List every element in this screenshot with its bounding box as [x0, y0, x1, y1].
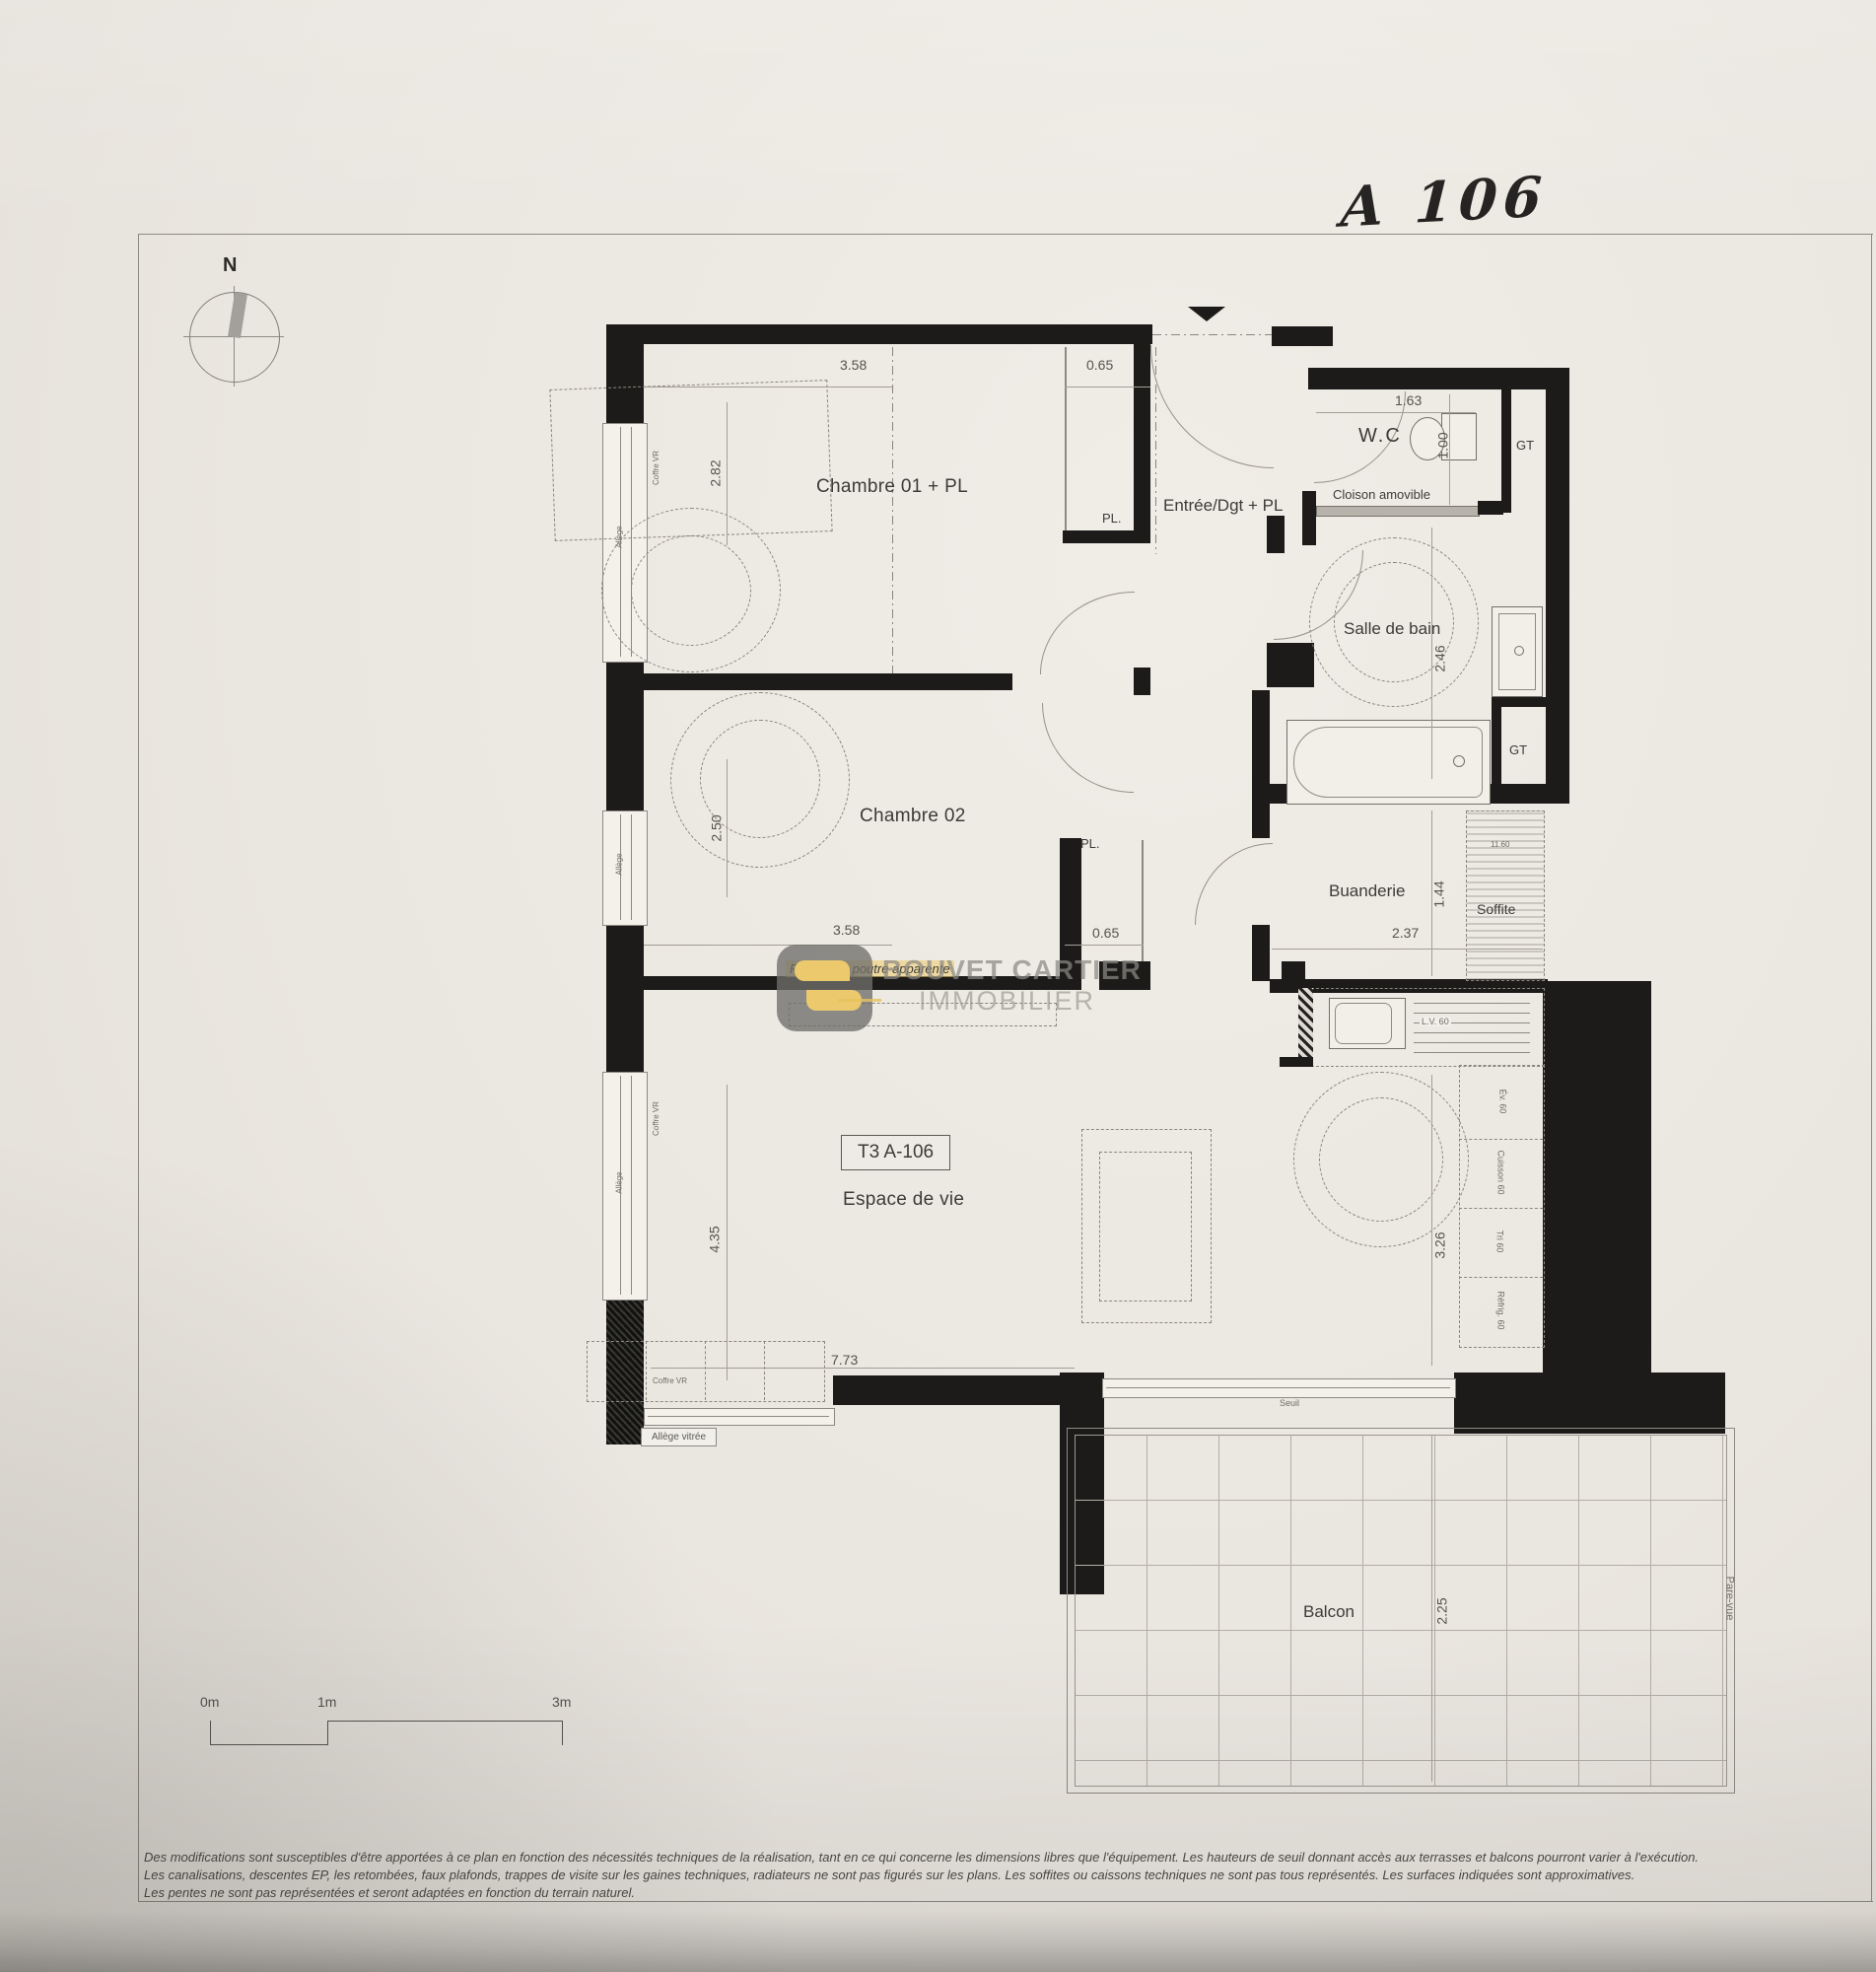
dimline-ch02-h: [727, 759, 728, 897]
dim-ch02-w: 3.58: [833, 922, 860, 938]
frame-top: [138, 234, 1873, 235]
label-allege-living: Allège: [615, 1171, 624, 1193]
dim-ch01-pl: 0.65: [1086, 357, 1113, 373]
dim-buanderie-w: 2.37: [1392, 925, 1419, 941]
label-allege-ch01: Allège: [615, 526, 624, 547]
watermark-sub: IMMOBILIER: [919, 986, 1095, 1017]
balcony-tiles: [1075, 1435, 1727, 1787]
watermark-name: BOUVET CARTIER: [882, 954, 1142, 986]
wall-corridor-buanderie-2: [1252, 925, 1270, 981]
dimline-sejour-w: [651, 1368, 1075, 1369]
watermark-logo-icon: [777, 945, 872, 1031]
label-cloison-amovible: Cloison amovible: [1333, 487, 1430, 502]
kitchen-item-tri: Tri 60: [1494, 1231, 1504, 1253]
pl01-partition: [1065, 347, 1067, 530]
dimline-ch01-h: [727, 402, 728, 545]
dim-sejour-w: 7.73: [831, 1352, 858, 1368]
scale-tick-3: [562, 1721, 563, 1745]
kitchen-divider-1: [1459, 1139, 1543, 1140]
axis-entry-threshold: [1152, 334, 1272, 335]
label-pl-ch02: PL.: [1080, 836, 1100, 851]
living-circle-inner: [1319, 1097, 1443, 1222]
label-coffre-vr-ch01: Coffre VR: [652, 451, 660, 485]
balcony-door-line: [1106, 1387, 1450, 1388]
dimline-buanderie-w: [1272, 949, 1543, 950]
disclaimer-line-1: Des modifications sont susceptibles d'êt…: [144, 1850, 1699, 1865]
kitchen-item-cuisson: Cuisson 60: [1496, 1150, 1506, 1194]
ch02-closet-partition: [1142, 840, 1144, 979]
handwritten-unit-label: A 106: [1339, 164, 1549, 240]
wall-cloison-right: [1478, 501, 1503, 515]
door-arc-buanderie: [1195, 843, 1273, 925]
dim-balcon-d: 2.25: [1434, 1597, 1450, 1624]
room-label-chambre02: Chambre 02: [860, 806, 966, 827]
window-living-glazing2: [631, 1076, 632, 1295]
door-arc-corridor-up: [1040, 592, 1135, 674]
wall-left-3: [606, 924, 644, 1072]
frame-right: [1871, 234, 1872, 1902]
wall-gt-divider: [1501, 389, 1511, 513]
kitchen-divider-2: [1459, 1208, 1543, 1209]
label-pl-ch01: PL.: [1102, 511, 1122, 526]
wall-right-mass: [1543, 981, 1651, 1375]
bath-vanity-faucet: [1514, 646, 1524, 656]
scale-label-1m: 1m: [317, 1694, 336, 1710]
dim-buanderie-h: 1.44: [1431, 880, 1447, 907]
label-allege-vitree: Allège vitrée: [641, 1428, 717, 1446]
dimline-balcon-d: [1431, 1435, 1432, 1782]
wall-living-bottom: [833, 1375, 1060, 1405]
dimline-ch02-pl: [1065, 945, 1144, 946]
scale-label-0m: 0m: [200, 1694, 219, 1710]
room-label-balcon: Balcon: [1303, 1602, 1355, 1622]
wall-wc-top: [1308, 368, 1569, 389]
kitchen-divider-3: [1459, 1277, 1543, 1278]
wall-entry-stub: [1272, 326, 1333, 346]
room-label-espace-de-vie: Espace de vie: [843, 1189, 964, 1211]
window-ch02-glazing2: [631, 814, 632, 920]
wall-top-ch01: [608, 324, 1152, 344]
wall-balcony-top-right: [1454, 1373, 1725, 1434]
label-seuil: Seuil: [1280, 1398, 1299, 1408]
wall-pl01-bottom: [1063, 530, 1150, 543]
room-label-chambre01: Chambre 01 + PL: [816, 476, 968, 498]
wall-cloison-left: [1302, 491, 1316, 545]
bay-window-line: [648, 1416, 829, 1417]
sofa: [587, 1341, 825, 1402]
frame-left: [138, 234, 139, 1902]
wall-bath-door-stub-a: [1267, 516, 1285, 553]
soffite-area: [1466, 810, 1545, 981]
bay-window-bottom: [644, 1408, 835, 1426]
dim-ch01-w: 3.58: [840, 357, 867, 373]
sofa-div-3: [764, 1341, 765, 1400]
kitchen-item-refrig: Réfrig. 60: [1496, 1291, 1506, 1329]
cloison-amovible-bar: [1316, 506, 1480, 517]
ch01-circle-inner: [631, 535, 751, 646]
room-label-soffite: Soffite: [1477, 901, 1515, 917]
floor-plan-photo: A 106 N: [0, 0, 1876, 1972]
dimline-sejour-h: [727, 1085, 728, 1380]
scale-tick-0: [210, 1721, 211, 1745]
scale-top-seg: [327, 1721, 562, 1722]
dim-sejour-h: 4.35: [707, 1226, 723, 1252]
axis-ch01-right: [892, 347, 893, 673]
label-pare-vue: Pare-vue: [1723, 1577, 1735, 1621]
dim-ch02-h: 2.50: [709, 814, 725, 841]
wall-left-2: [606, 661, 644, 810]
dimline-ch01-w: [644, 387, 892, 387]
label-gt-wc: GT: [1516, 438, 1534, 453]
scale-bottom-seg: [210, 1744, 327, 1745]
dimline-ch01-pl: [1065, 387, 1150, 387]
kitchen-duct-cap: [1280, 1057, 1313, 1067]
wall-ch01-ch02-cap: [1134, 668, 1150, 695]
sofa-div-2: [705, 1341, 706, 1400]
photo-bottom-shadow: [0, 1911, 1876, 1972]
dim-ch01-h: 2.82: [708, 459, 724, 486]
label-coffre-vr-living: Coffre VR: [652, 1101, 660, 1136]
room-label-buanderie: Buanderie: [1329, 881, 1406, 901]
dim-wc-w: 1.63: [1395, 392, 1422, 408]
dining-table-inner: [1099, 1152, 1192, 1302]
kitchen-item-evier: Év. 60: [1497, 1090, 1507, 1114]
dimline-cuisine-h: [1431, 1075, 1432, 1366]
watermark-dash: [838, 999, 881, 1002]
dim-cuisine-h: 3.26: [1432, 1232, 1448, 1258]
scale-tick-1: [327, 1721, 328, 1745]
wall-ch01-ch02: [644, 673, 1012, 690]
room-label-entree: Entrée/Dgt + PL: [1163, 496, 1283, 516]
disclaimer-line-2: Les canalisations, descentes EP, les ret…: [144, 1867, 1634, 1882]
wall-pl01-right: [1134, 344, 1150, 541]
door-arc-ch02: [1042, 703, 1134, 793]
room-label-salle-de-bain: Salle de bain: [1344, 619, 1440, 639]
window-living: [602, 1072, 648, 1301]
room-label-wc: W.C: [1358, 425, 1402, 448]
label-soffite-dim: 11.60: [1491, 840, 1509, 849]
window-ch02: [602, 810, 648, 926]
label-gt-bain: GT: [1509, 742, 1527, 757]
wall-buanderie-pillar: [1282, 961, 1305, 979]
dim-ch02-pl: 0.65: [1092, 925, 1119, 941]
kitchen-duct: [1298, 988, 1313, 1057]
label-coffre-vr-bottom: Coffre VR: [653, 1376, 687, 1385]
frame-bottom: [138, 1901, 1873, 1902]
disclaimer-line-3: Les pentes ne sont pas représentées et s…: [144, 1885, 635, 1900]
label-allege-ch02: Allège: [615, 853, 624, 875]
sofa-div-1: [646, 1341, 647, 1400]
dim-wc-d: 1.00: [1435, 432, 1451, 458]
unit-box: T3 A-106: [841, 1135, 950, 1170]
wall-bath-door-stub-b: [1267, 643, 1314, 687]
entry-arrow-icon: [1188, 307, 1225, 321]
dimline-wc-w: [1316, 412, 1476, 413]
compass-n-label: N: [223, 254, 237, 277]
wall-corridor-buanderie-1: [1252, 690, 1270, 838]
balcony-door-threshold: [1102, 1378, 1456, 1398]
watermark-logo-bar1: [795, 960, 850, 981]
door-arc-entry: [1150, 345, 1274, 468]
dim-sdb-h: 2.46: [1432, 645, 1448, 671]
wall-right-upper: [1546, 389, 1569, 804]
kitchen-sink-bowl: [1335, 1003, 1392, 1044]
bathtub-drain: [1453, 755, 1465, 767]
wall-bath-gt-v: [1492, 697, 1501, 796]
label-lave-vaisselle: L.V. 60: [1420, 1017, 1451, 1026]
scale-label-3m: 3m: [552, 1694, 571, 1710]
